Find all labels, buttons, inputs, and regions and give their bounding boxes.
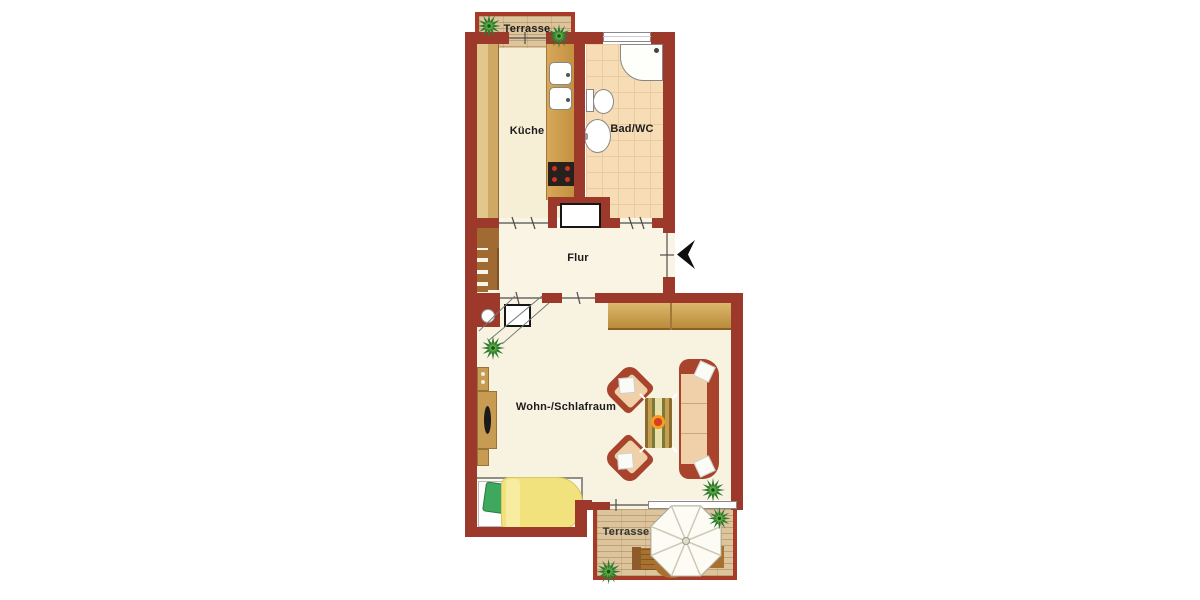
drain-icon: [654, 48, 659, 53]
wall: [465, 218, 499, 228]
wall: [465, 293, 500, 303]
sideboard: [477, 367, 489, 391]
wall: [575, 500, 592, 510]
window-line: [603, 36, 651, 37]
wall: [592, 502, 610, 510]
room-label-terrace-bottom: Terrasse: [586, 526, 666, 538]
wall: [574, 44, 585, 197]
burner-icon: [552, 166, 557, 171]
room-label-kitchen: Küche: [487, 125, 567, 137]
wall: [610, 218, 620, 228]
sliding-door: [648, 501, 737, 509]
faucet-icon: [566, 98, 570, 102]
room-label-bathroom: Bad/WC: [592, 123, 672, 135]
entrance-arrow-icon: [677, 240, 695, 269]
stair-step: [477, 286, 488, 292]
chimney-circle: [481, 309, 495, 323]
shaft: [504, 304, 531, 327]
door-threshold: [620, 218, 652, 228]
knob-icon: [481, 372, 485, 376]
room-label-living-sleeping: Wohn-/Schlafraum: [486, 401, 646, 413]
wall: [542, 293, 562, 303]
wall: [652, 218, 663, 228]
sofa: [679, 359, 719, 479]
wall: [663, 44, 675, 233]
burner-icon: [565, 166, 570, 171]
wall: [601, 206, 610, 228]
pillow: [618, 377, 635, 394]
wardrobe-divider: [670, 303, 672, 330]
wall: [465, 32, 477, 537]
door-threshold: [562, 293, 595, 303]
knob-icon: [481, 380, 485, 384]
shaft: [560, 203, 601, 228]
stairs: [488, 248, 499, 290]
floor-plan: Terrasse Küche Bad/WC Flur Wohn-/Schlafr…: [0, 0, 1200, 600]
stair-step: [477, 262, 488, 270]
stair-step: [477, 274, 488, 282]
sofa-cushions: [681, 374, 707, 464]
cushion-seam: [681, 403, 707, 404]
wall: [595, 293, 743, 303]
wall: [548, 206, 557, 228]
faucet-icon: [566, 73, 570, 77]
candle-icon: [651, 415, 665, 429]
terrace-table: [654, 548, 690, 578]
terrace-chair: [632, 547, 641, 570]
wall: [651, 32, 675, 44]
entrance-threshold: [663, 233, 675, 277]
burner-icon: [552, 177, 557, 182]
wall: [465, 527, 587, 537]
sideboard: [477, 449, 489, 466]
wall: [731, 303, 743, 510]
cushion-seam: [681, 433, 707, 434]
toilet: [593, 89, 614, 114]
window: [603, 32, 651, 42]
stair-step: [477, 250, 488, 258]
room-label-terrace-top: Terrasse: [487, 23, 567, 35]
burner-icon: [565, 177, 570, 182]
room-label-hallway: Flur: [538, 252, 618, 264]
duvet-fold: [506, 479, 520, 529]
door-threshold: [499, 218, 548, 228]
terrace-chair: [710, 546, 724, 568]
door-threshold: [500, 293, 542, 303]
pillow: [617, 452, 634, 469]
